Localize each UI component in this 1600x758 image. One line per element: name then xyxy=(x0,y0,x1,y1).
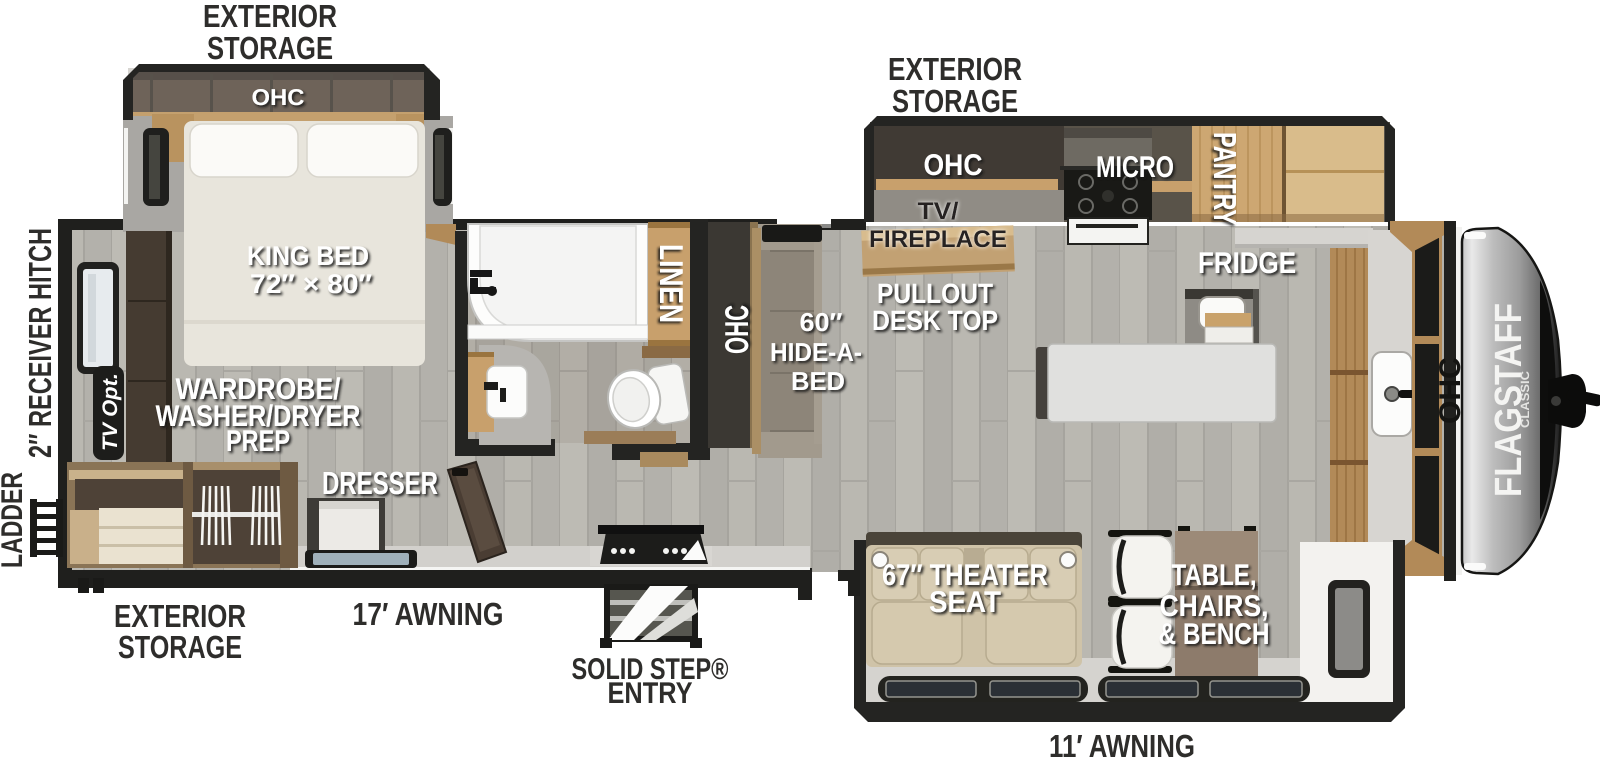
svg-text:CLASSIC: CLASSIC xyxy=(1518,371,1532,428)
svg-text:HIDE-A-: HIDE-A- xyxy=(770,337,862,367)
svg-text:FIREPLACE: FIREPLACE xyxy=(869,226,1007,253)
svg-text:72″ × 80″: 72″ × 80″ xyxy=(250,269,372,299)
svg-text:TABLE,: TABLE, xyxy=(1172,559,1257,592)
svg-text:SEAT: SEAT xyxy=(929,586,1001,619)
svg-text:MICRO: MICRO xyxy=(1096,151,1174,184)
svg-text:DESK TOP: DESK TOP xyxy=(872,305,998,336)
svg-text:TV/: TV/ xyxy=(918,198,959,225)
svg-text:LADDER: LADDER xyxy=(0,472,29,568)
svg-text:11′ AWNING: 11′ AWNING xyxy=(1049,728,1195,758)
svg-text:STORAGE: STORAGE xyxy=(892,83,1018,119)
svg-text:OHC: OHC xyxy=(924,149,983,182)
svg-text:ENTRY: ENTRY xyxy=(608,677,693,710)
svg-text:STORAGE: STORAGE xyxy=(207,30,333,66)
svg-text:EXTERIOR: EXTERIOR xyxy=(888,51,1022,87)
svg-text:PANTRY: PANTRY xyxy=(1207,132,1243,225)
svg-text:KING BED: KING BED xyxy=(247,241,369,271)
svg-text:EXTERIOR: EXTERIOR xyxy=(203,0,337,34)
svg-text:OHC: OHC xyxy=(1434,357,1467,424)
svg-text:& BENCH: & BENCH xyxy=(1159,618,1270,651)
svg-text:OHC: OHC xyxy=(718,305,755,354)
svg-text:OHC: OHC xyxy=(252,84,305,110)
svg-text:2″ RECEIVER HITCH: 2″ RECEIVER HITCH xyxy=(22,228,58,458)
svg-text:FRIDGE: FRIDGE xyxy=(1198,247,1296,280)
svg-text:LINEN: LINEN xyxy=(653,244,690,323)
svg-text:BED: BED xyxy=(791,366,845,396)
svg-text:DRESSER: DRESSER xyxy=(322,465,438,501)
svg-text:17′ AWNING: 17′ AWNING xyxy=(353,596,504,632)
svg-text:TV Opt.: TV Opt. xyxy=(99,373,122,451)
svg-text:60″: 60″ xyxy=(800,307,843,337)
svg-text:PREP: PREP xyxy=(226,425,290,458)
svg-text:STORAGE: STORAGE xyxy=(118,629,242,665)
